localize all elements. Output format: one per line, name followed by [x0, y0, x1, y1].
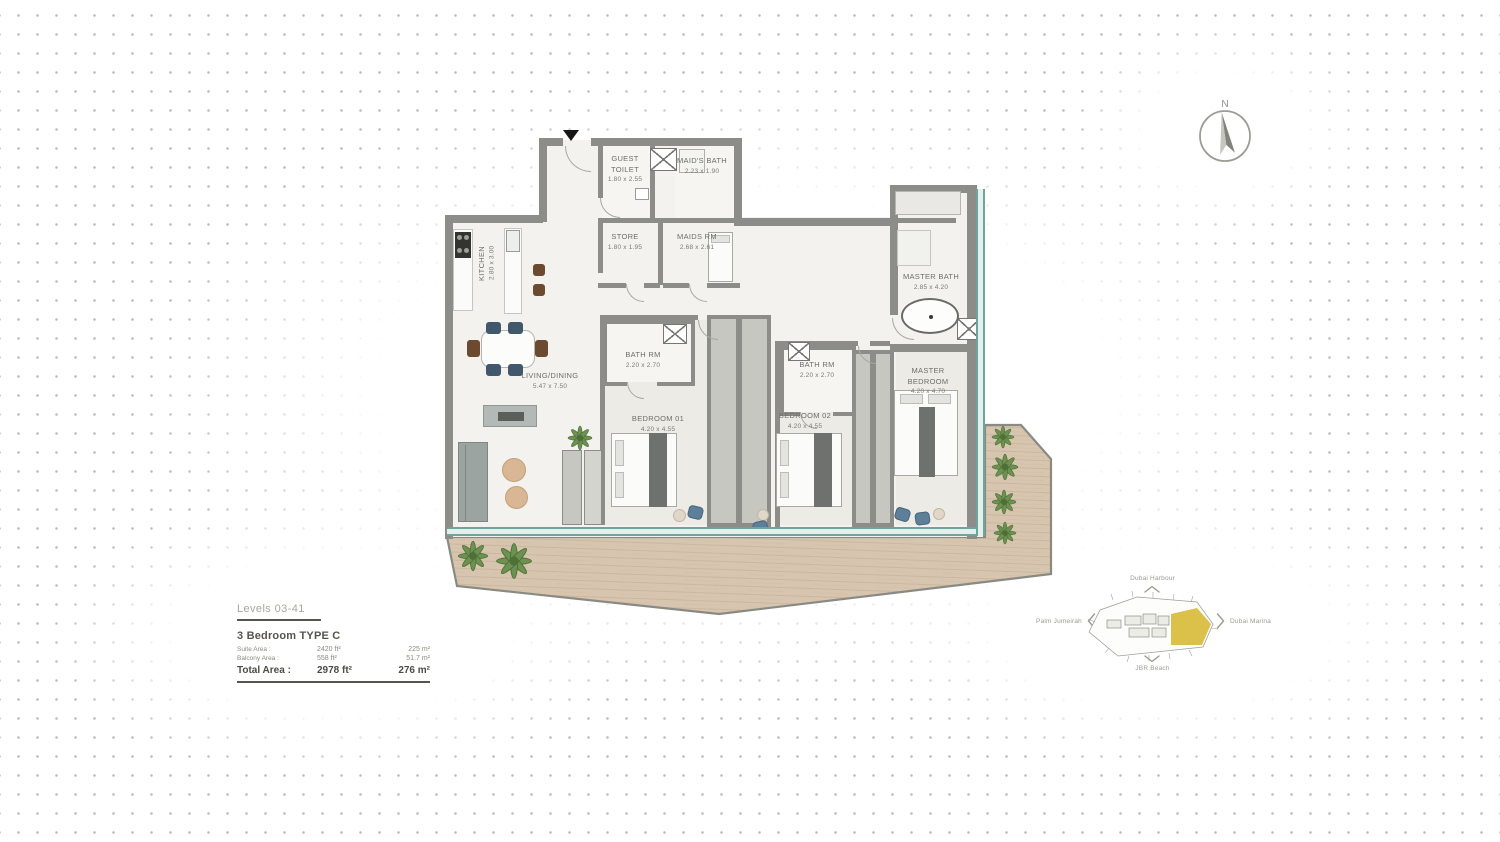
wall	[707, 283, 740, 288]
room-name: BEDROOM 01	[618, 414, 698, 425]
room-name: GUEST TOILET	[602, 154, 648, 175]
room-dim: 5.47 x 7.50	[500, 382, 600, 391]
wall	[598, 218, 740, 223]
room-label-bath-rm-1: BATH RM 2.20 x 2.70	[613, 350, 673, 370]
closet	[562, 450, 582, 525]
washbasin	[635, 188, 649, 200]
keyplan-label-bottom: JBR Beach	[1100, 665, 1205, 672]
wall	[780, 346, 784, 416]
wall	[539, 138, 563, 146]
room-dim: 4.20 x 4.55	[618, 425, 698, 434]
closet	[875, 353, 891, 524]
room-label-bedroom-01: BEDROOM 01 4.20 x 4.55	[618, 414, 698, 434]
wall	[603, 382, 627, 386]
wall	[445, 215, 543, 223]
keyplan-label-right: Dubai Marina	[1230, 618, 1280, 625]
room-label-maids-bath: MAID'S BATH 2.23 x 1.90	[673, 156, 731, 176]
area-ft: 2978 ft²	[317, 665, 383, 676]
chevron-right-icon	[1216, 612, 1225, 630]
room-dim: 2.85 x 4.20	[900, 283, 962, 292]
area-m2: 51.7 m²	[406, 655, 430, 662]
keyplan: Dubai Harbour Palm Jumeirah	[1030, 573, 1280, 688]
area-label: Suite Area :	[237, 646, 317, 653]
sink	[506, 230, 520, 252]
wall	[691, 320, 695, 386]
wall	[657, 382, 695, 386]
floorplan: KITCHEN 2.80 x 3.00 GUEST TOILET 1.80 x …	[445, 128, 1060, 633]
room-dim: 2.68 x 2.61	[660, 243, 734, 252]
glass-wall	[447, 527, 983, 536]
area-label: Balcony Area :	[237, 655, 317, 662]
room-label-master-bath: MASTER BATH 2.85 x 4.20	[900, 272, 962, 292]
compass-north-label: N	[1221, 99, 1228, 110]
pouf	[502, 458, 526, 482]
room-name: LIVING/DINING	[500, 371, 600, 382]
area-ft: 2420 ft²	[317, 646, 383, 653]
wall	[598, 283, 626, 288]
area-label: Total Area :	[237, 665, 317, 676]
room-label-living-dining: LIVING/DINING 5.47 x 7.50	[500, 371, 600, 391]
glass-wall	[976, 189, 985, 536]
room-dim: 2.20 x 2.70	[787, 371, 847, 380]
sofa	[458, 442, 488, 522]
legend-rule	[237, 681, 430, 683]
dining-chair	[486, 322, 501, 334]
area-row-suite: Suite Area : 2420 ft² 225 m²	[237, 646, 430, 653]
room-dim: 2.80 x 3.00	[489, 246, 496, 280]
room-dim: 2.20 x 2.70	[613, 361, 673, 370]
stove	[455, 232, 471, 258]
area-row-balcony: Balcony Area : 558 ft² 51.7 m²	[237, 655, 430, 662]
chevron-down-icon	[1143, 655, 1161, 663]
legend: Levels 03-41 3 Bedroom TYPE C Suite Area…	[237, 599, 430, 683]
wall	[734, 218, 898, 226]
wall	[890, 344, 975, 352]
room-name: MASTER BEDROOM	[890, 366, 966, 387]
pouf	[505, 486, 528, 509]
wall	[898, 218, 956, 223]
room-name: MAID'S BATH	[673, 156, 731, 167]
room-dim: 4.20 x 4.70	[890, 387, 966, 396]
page: N	[0, 0, 1500, 842]
dining-chair	[535, 340, 548, 357]
wall	[734, 138, 742, 226]
wall	[852, 346, 856, 416]
bar-stool	[533, 264, 545, 276]
room-name: MASTER BATH	[900, 272, 962, 283]
room-label-master-bedroom: MASTER BEDROOM 4.20 x 4.70	[890, 366, 966, 396]
room-label-store: STORE 1.80 x 1.95	[602, 232, 648, 252]
closet	[855, 353, 871, 524]
closet	[710, 318, 737, 524]
dining-table	[481, 330, 535, 368]
wall	[591, 138, 740, 146]
room-dim: 1.80 x 1.95	[602, 243, 648, 252]
room-name: KITCHEN	[477, 245, 486, 280]
wall	[445, 215, 453, 539]
closet	[741, 318, 768, 524]
dining-chair	[508, 322, 523, 334]
levels-label: Levels 03-41	[237, 603, 321, 621]
area-row-total: Total Area : 2978 ft² 276 m²	[237, 665, 430, 676]
entry-arrow-icon	[563, 130, 579, 141]
shaft-box	[663, 324, 687, 344]
side-table	[933, 508, 945, 520]
room-label-guest-toilet: GUEST TOILET 1.80 x 2.55	[602, 154, 648, 184]
bed-bedroom-01	[611, 433, 677, 507]
keyplan-label-top: Dubai Harbour	[1100, 575, 1205, 582]
room-name: MAIDS RM	[660, 232, 734, 243]
bar-stool	[533, 284, 545, 296]
room-name: STORE	[602, 232, 648, 243]
area-m2: 276 m²	[398, 665, 430, 676]
keyplan-label-left: Palm Jumeirah	[1030, 618, 1082, 625]
armchair	[914, 511, 931, 526]
area-m2: 225 m²	[408, 646, 430, 653]
bed-master	[894, 390, 958, 476]
room-name: BEDROOM 02	[765, 411, 845, 422]
room-label-bath-rm-2: BATH RM 2.20 x 2.70	[787, 360, 847, 380]
shaft-box	[788, 342, 810, 361]
wall	[663, 283, 689, 288]
room-dim: 1.80 x 2.55	[602, 175, 648, 184]
room-dim: 4.20 x 4.55	[765, 422, 845, 431]
room-label-bedroom-02: BEDROOM 02 4.20 x 4.55	[765, 411, 845, 431]
area-ft: 558 ft²	[317, 655, 383, 662]
wall	[539, 138, 547, 222]
closet	[895, 191, 961, 215]
unit-type-label: 3 Bedroom TYPE C	[237, 630, 430, 642]
room-label-kitchen: KITCHEN 2.80 x 3.00	[477, 226, 498, 300]
room-label-maids-rm: MAIDS RM 2.68 x 2.61	[660, 232, 734, 252]
tv-console	[483, 405, 537, 427]
room-name: BATH RM	[787, 360, 847, 371]
room-dim: 2.23 x 1.90	[673, 167, 731, 176]
bed-bedroom-02	[776, 433, 842, 507]
wall	[644, 283, 660, 288]
room-name: BATH RM	[613, 350, 673, 361]
compass-icon: N	[1196, 94, 1254, 164]
shower	[897, 230, 931, 266]
side-table	[673, 509, 686, 522]
dining-chair	[467, 340, 480, 357]
closet	[584, 450, 602, 525]
wall	[603, 320, 607, 386]
dining-chair	[486, 364, 501, 376]
